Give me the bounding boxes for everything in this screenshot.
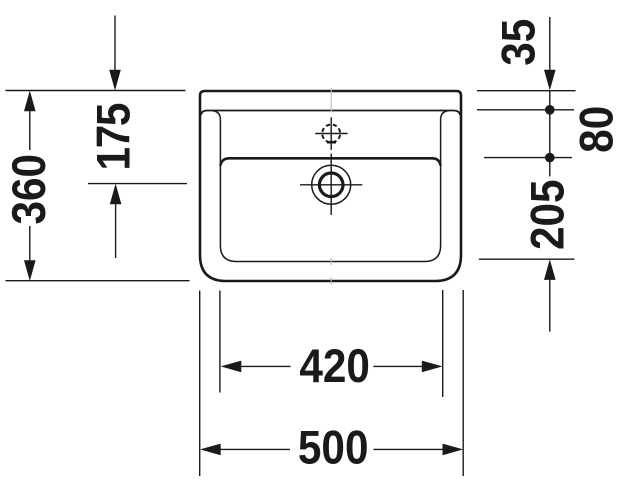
svg-text:205: 205 [522, 179, 574, 250]
svg-text:500: 500 [298, 422, 369, 474]
svg-text:35: 35 [493, 19, 545, 66]
svg-text:175: 175 [89, 103, 141, 170]
svg-text:360: 360 [4, 154, 56, 225]
svg-text:80: 80 [571, 106, 623, 153]
svg-text:420: 420 [299, 341, 370, 393]
